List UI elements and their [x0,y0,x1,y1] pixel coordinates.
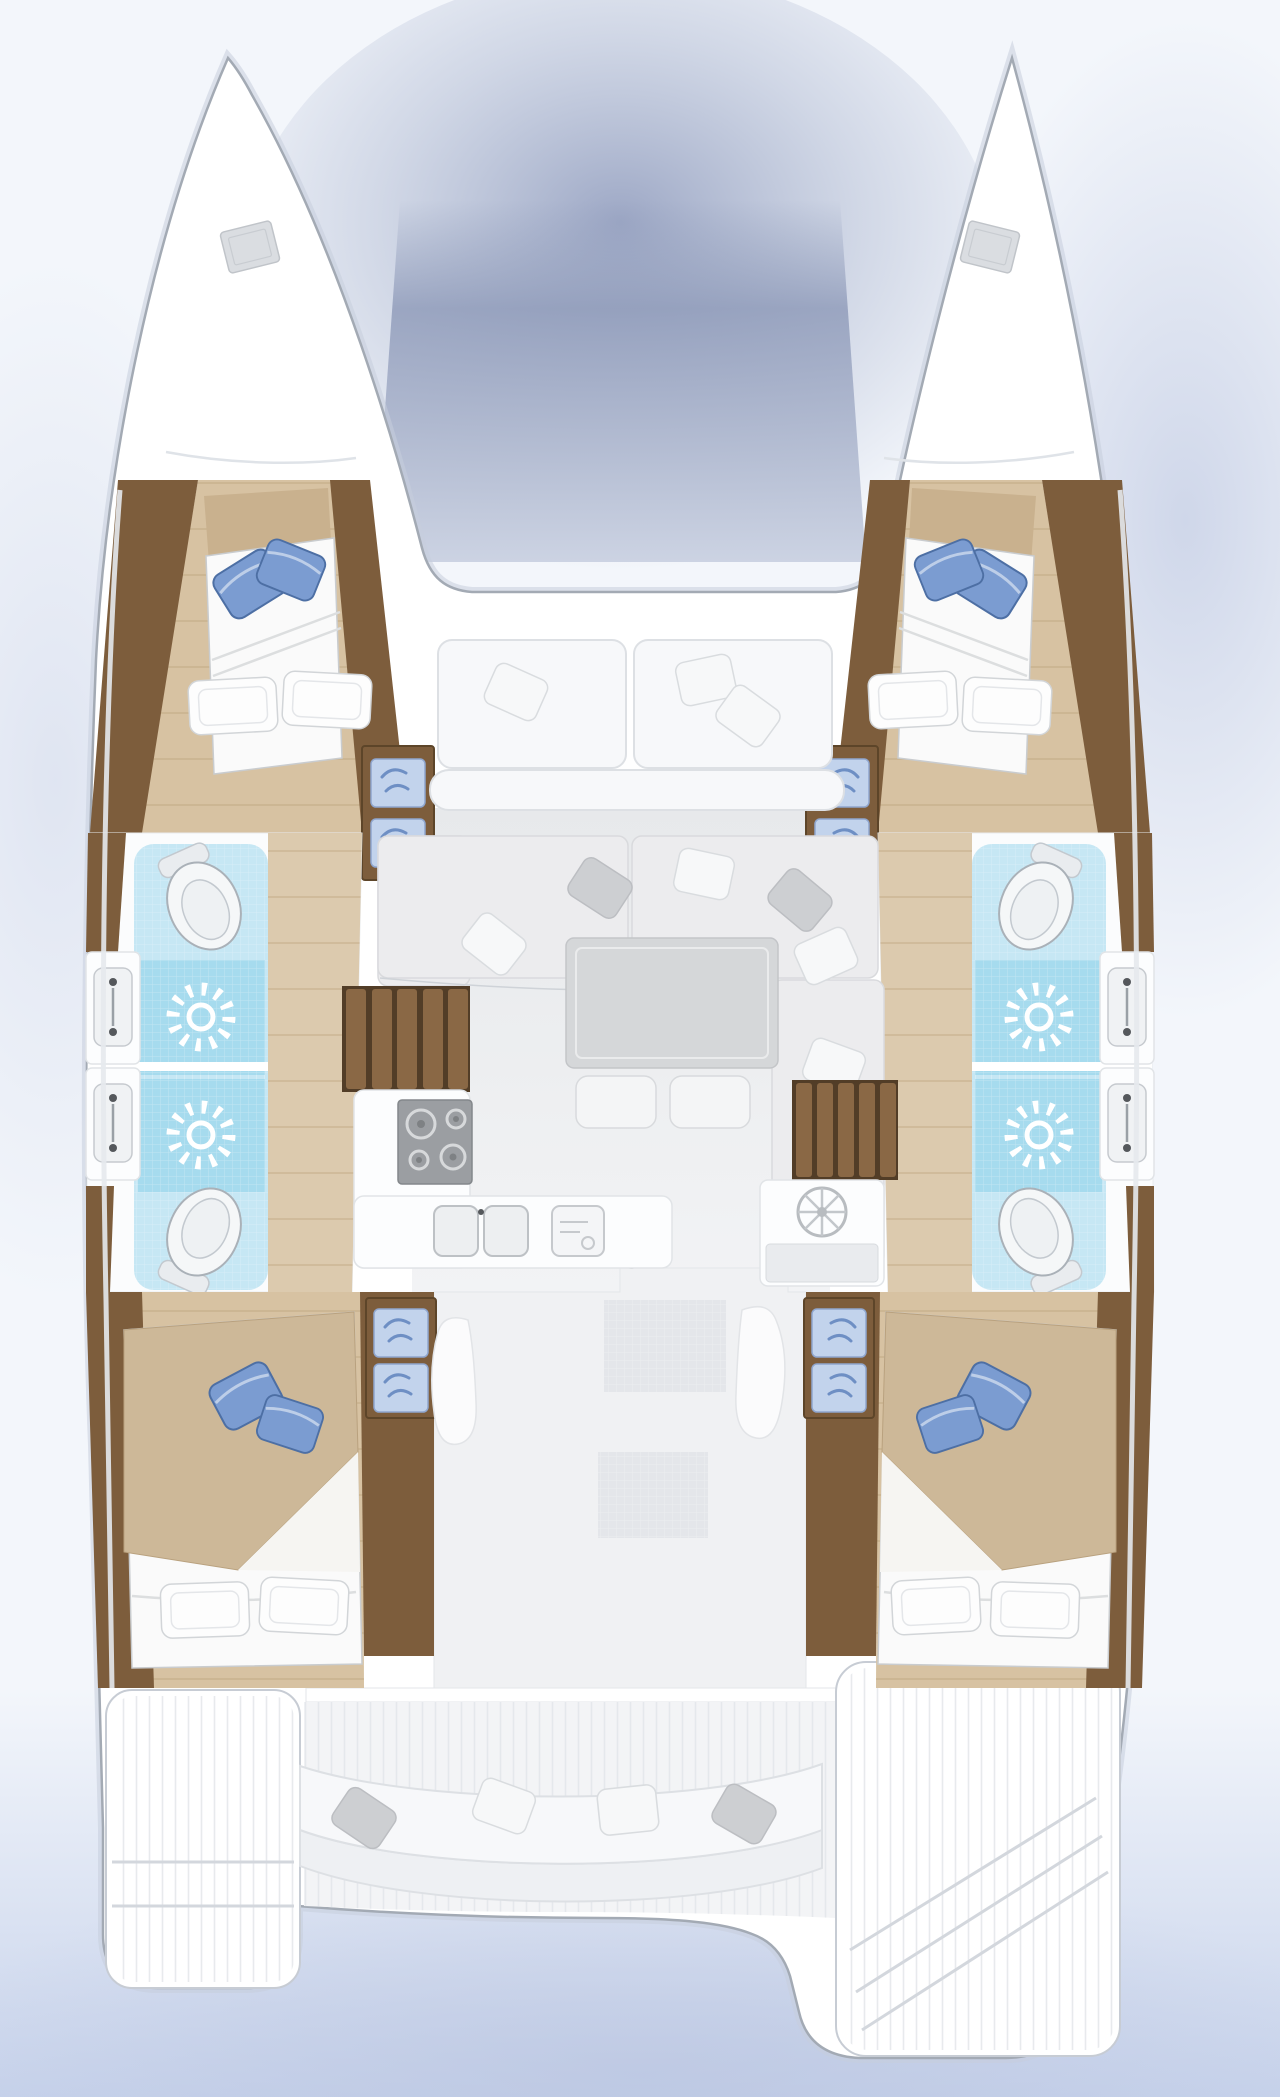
burner-dot [450,1154,457,1161]
nav-panel [766,1244,878,1282]
salon-aft-wall [306,1688,836,1702]
walkway-mat-grid [604,1300,726,1392]
burner-dot [416,1157,422,1163]
stool [576,1076,656,1128]
stool [670,1076,750,1128]
linen-crumple [736,1307,785,1439]
floorplan-canvas [0,0,1280,2097]
burner-dot [417,1120,425,1128]
starboard-transom-platform [836,1662,1120,2056]
galley-sink [484,1206,528,1256]
bow-seating [430,640,844,810]
nav-station [760,1180,884,1286]
white-throw-pillow [596,1784,659,1836]
sink-faucet [478,1209,484,1215]
wheel-hub [817,1207,827,1217]
walkway-mat-grid [598,1452,708,1538]
salon-table [566,938,778,1068]
port-hull-stairs [342,986,470,1092]
port-transom-platform [106,1690,300,1988]
burner-dot [453,1116,459,1122]
catamaran-floorplan [0,0,1280,2097]
bow-bench-backrest [430,770,844,810]
trampoline [374,200,866,562]
galley-sink [434,1206,478,1256]
linen-crumple [432,1318,476,1445]
starboard-hull-stairs [792,1080,898,1180]
